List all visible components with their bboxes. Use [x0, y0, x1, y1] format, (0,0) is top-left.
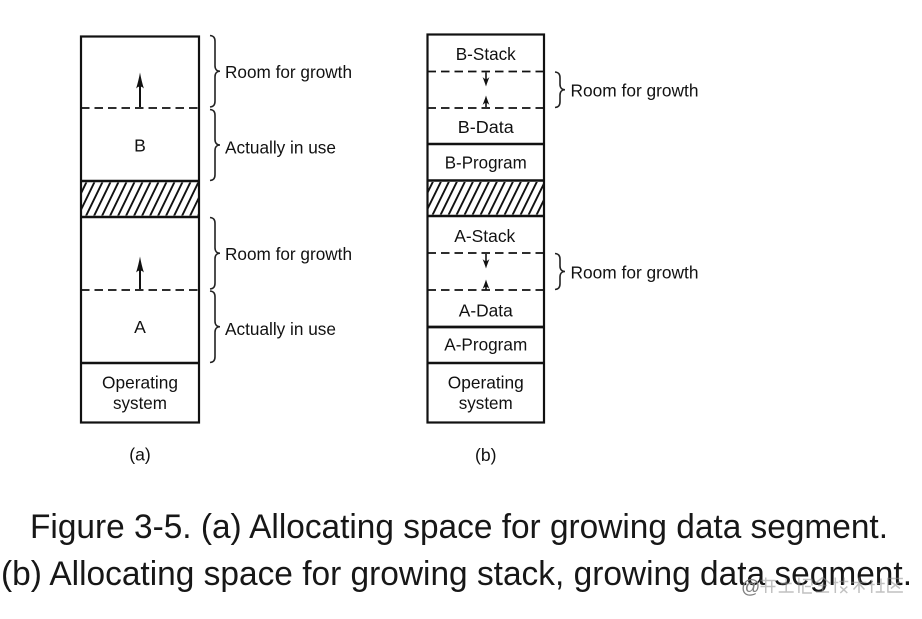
svg-text:A: A [134, 317, 146, 337]
svg-text:(a): (a) [129, 445, 151, 465]
svg-text:B-Stack: B-Stack [456, 44, 516, 64]
svg-text:B: B [134, 136, 146, 156]
svg-text:Actually in use: Actually in use [225, 319, 336, 339]
svg-text:Room for growth: Room for growth [571, 263, 699, 283]
svg-text:@: @ [741, 577, 760, 598]
svg-text:B-Data: B-Data [458, 117, 514, 137]
svg-text:system: system [113, 393, 167, 413]
svg-text:Figure 3-5. (a) Allocating spa: Figure 3-5. (a) Allocating space for gro… [30, 508, 888, 546]
svg-text:Operating: Operating [448, 373, 524, 393]
svg-text:(b): (b) [475, 445, 497, 465]
svg-text:A-Stack: A-Stack [454, 226, 515, 246]
svg-text:A-Data: A-Data [459, 301, 513, 321]
svg-text:Room for growth: Room for growth [571, 81, 699, 101]
svg-text:A-Program: A-Program [444, 335, 527, 355]
svg-text:(b) Allocating space for growi: (b) Allocating space for growing stack, … [1, 555, 912, 593]
svg-text:Actually in use: Actually in use [225, 138, 336, 158]
svg-text:system: system [459, 393, 513, 413]
svg-text:Room for growth: Room for growth [225, 62, 352, 82]
svg-text:Operating: Operating [102, 373, 178, 393]
svg-text:Room for growth: Room for growth [225, 244, 352, 264]
svg-text:B-Program: B-Program [445, 153, 527, 173]
